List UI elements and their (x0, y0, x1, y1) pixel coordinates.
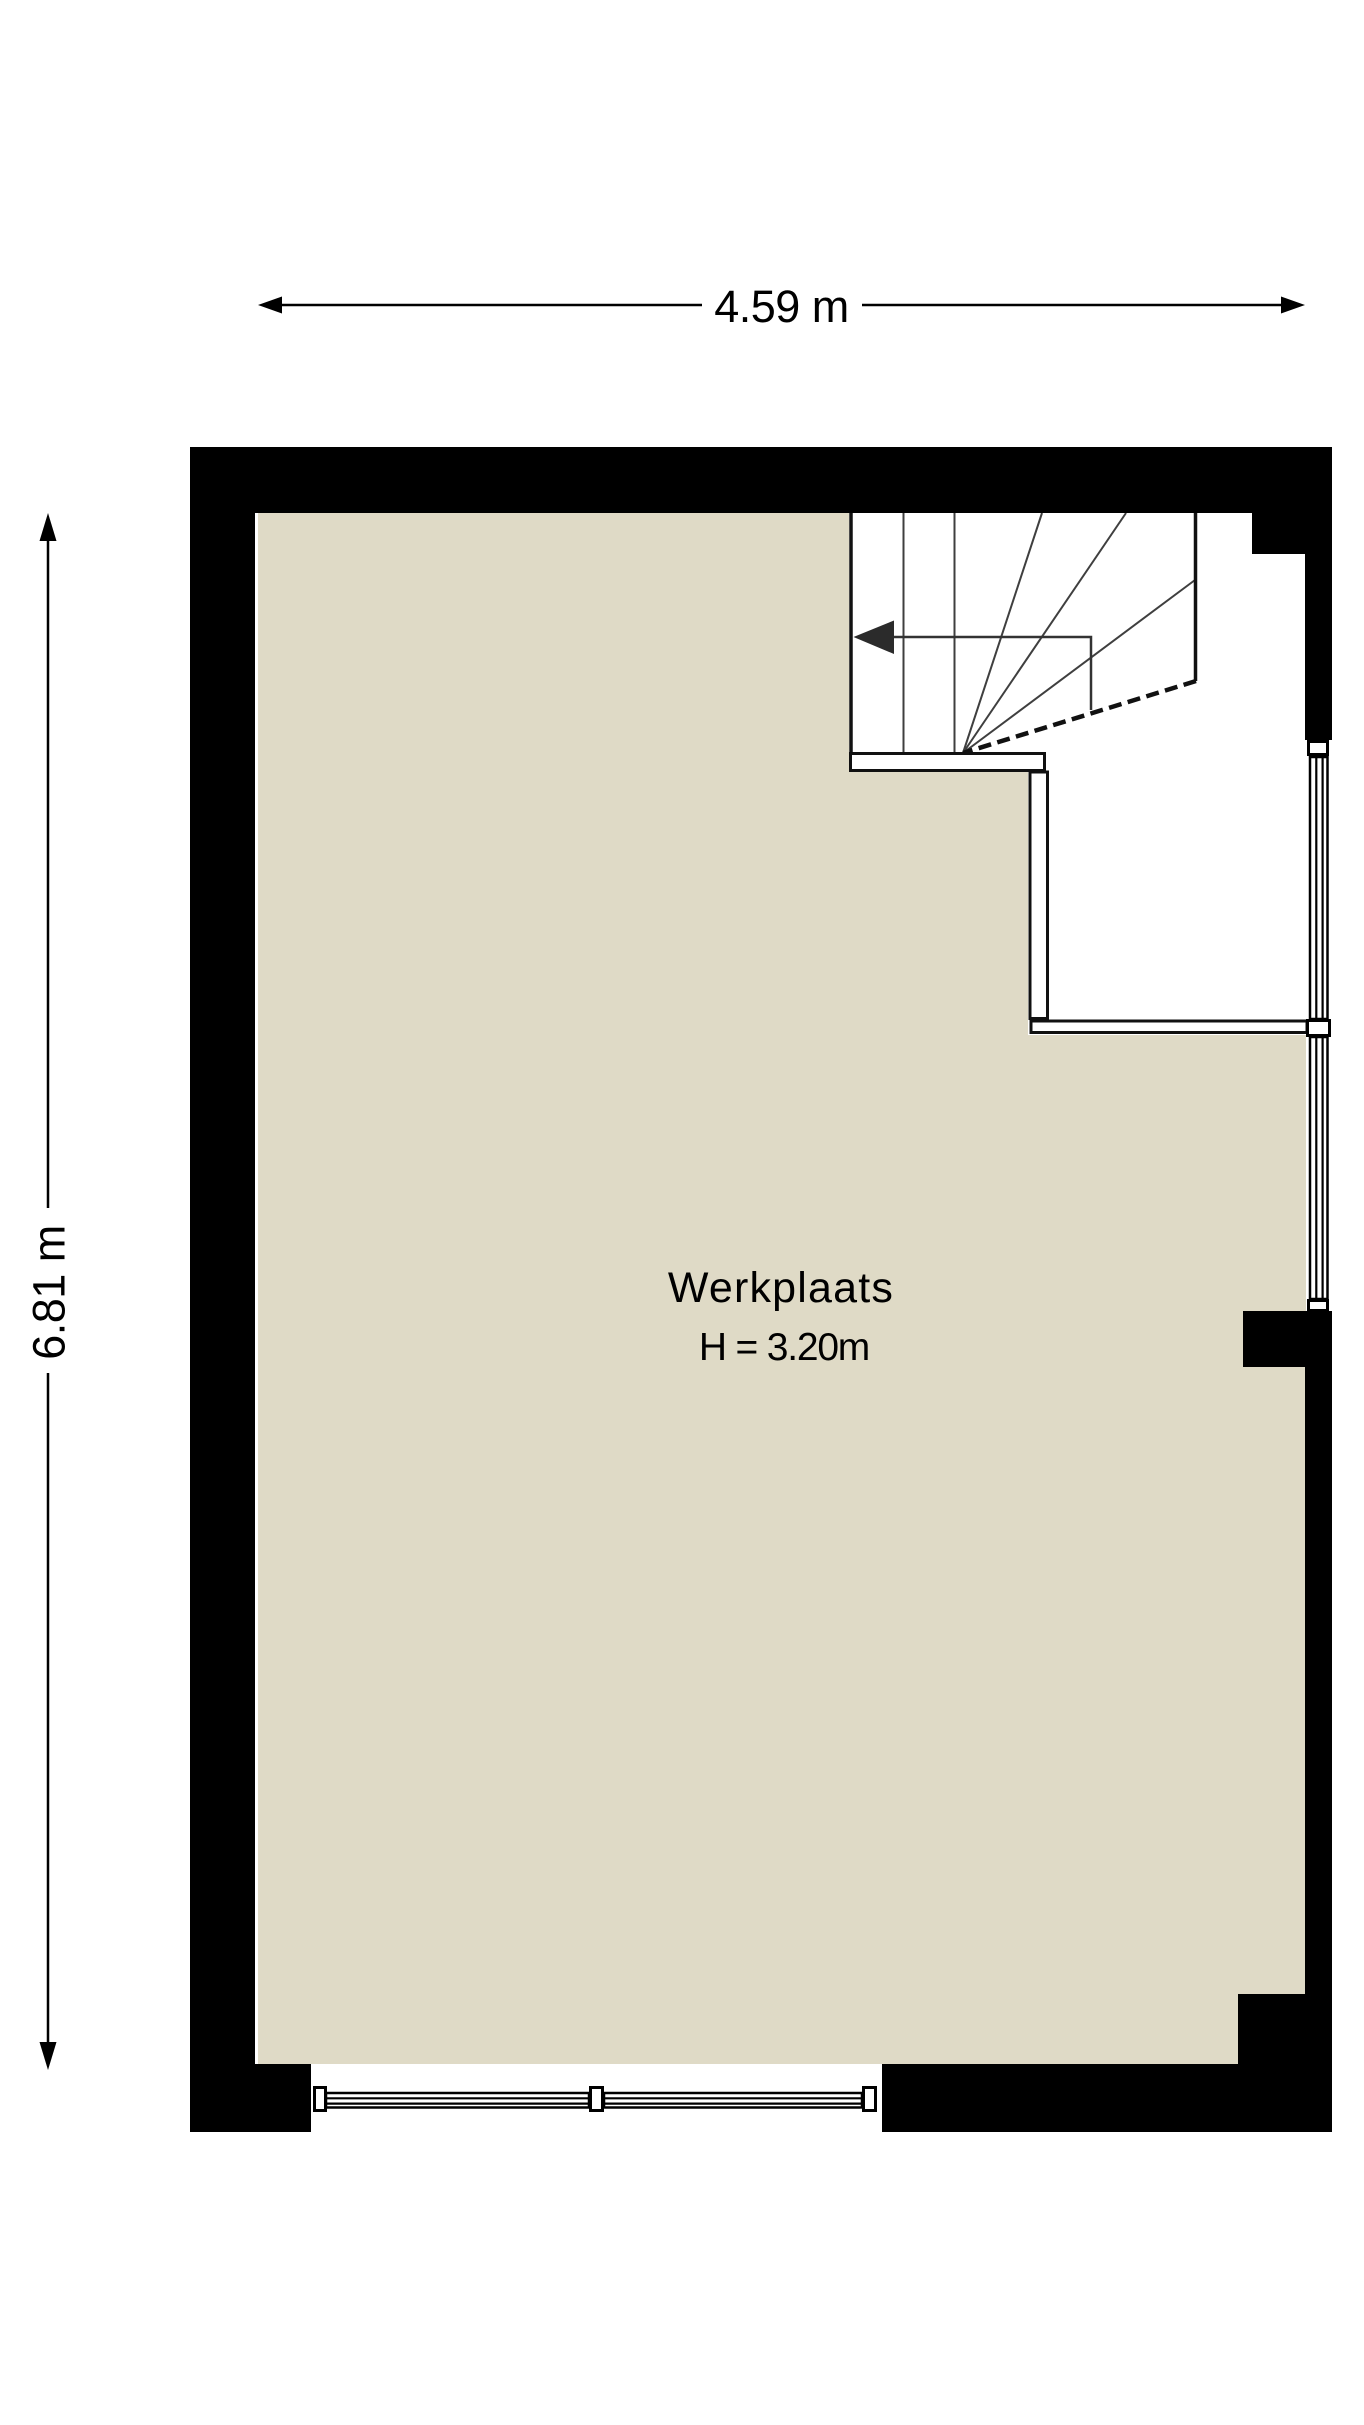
svg-text:6.81 m: 6.81 m (24, 1225, 75, 1360)
svg-text:H = 3.20m: H = 3.20m (699, 1326, 869, 1369)
svg-text:Werkplaats: Werkplaats (668, 1264, 894, 1312)
svg-text:4.59 m: 4.59 m (714, 281, 849, 332)
